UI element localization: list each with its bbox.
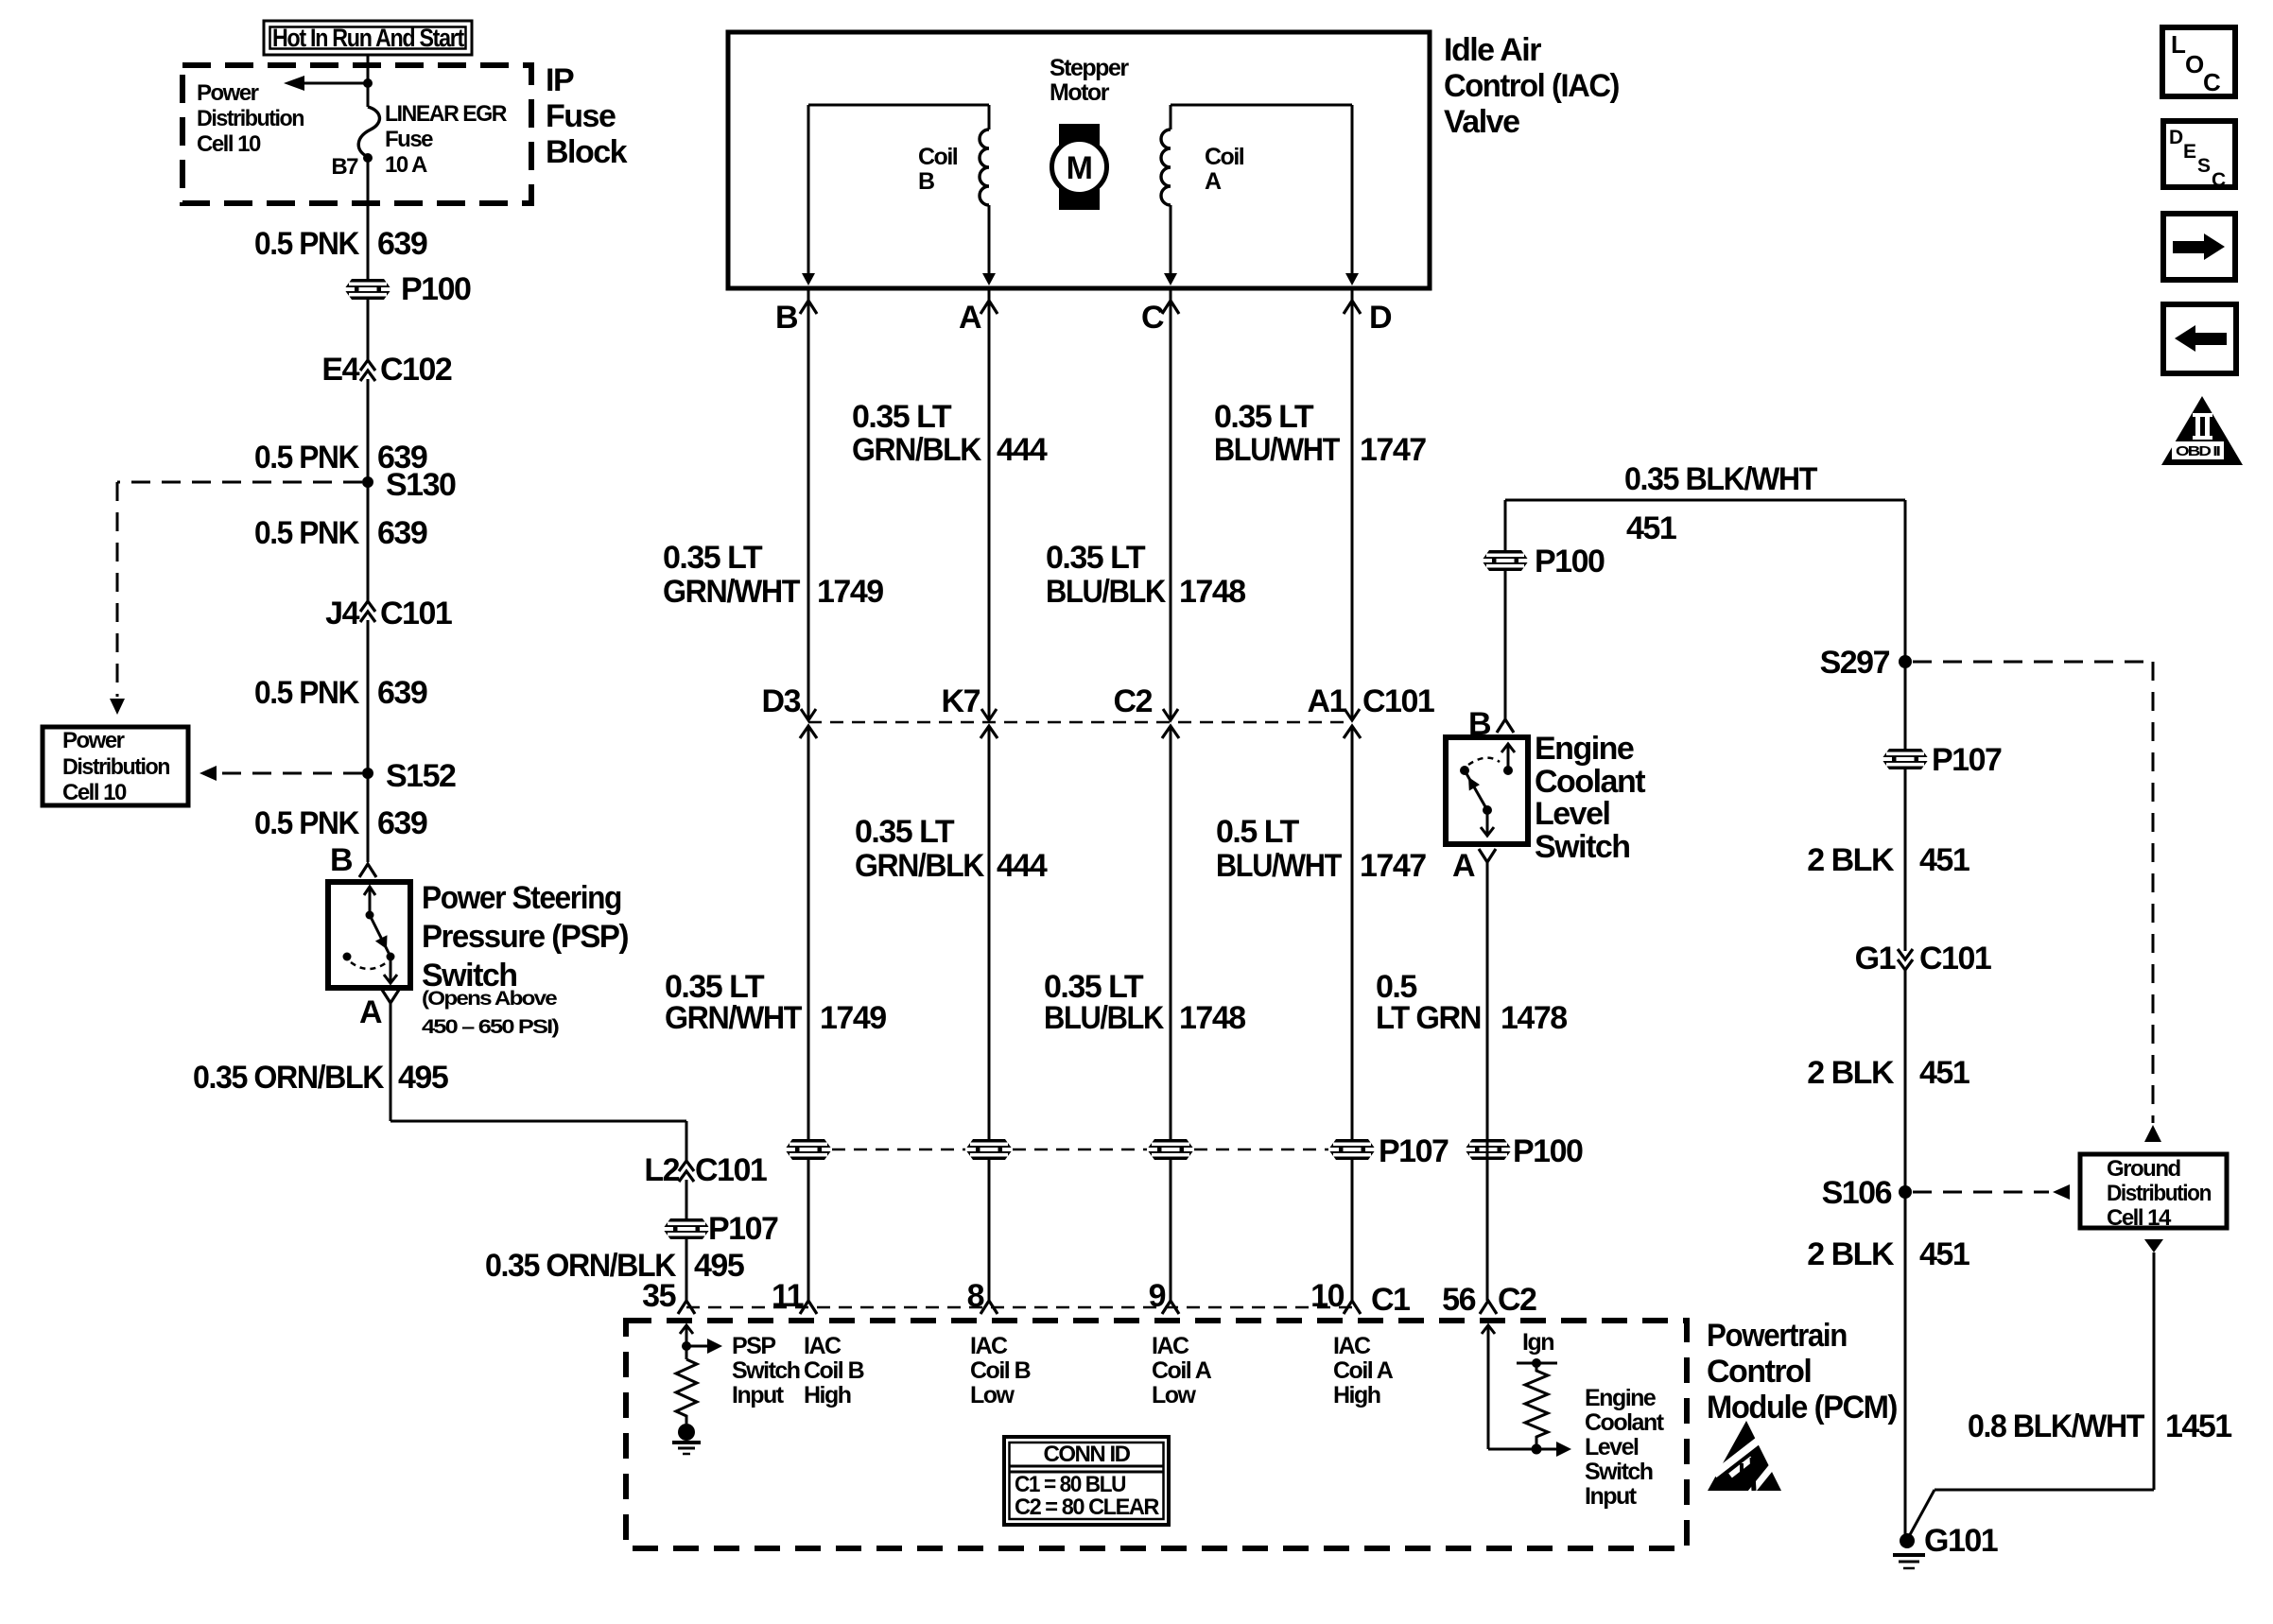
svg-text:E4: E4 (321, 352, 359, 388)
svg-text:Idle Air: Idle Air (1444, 32, 1541, 68)
svg-text:Ign: Ign (1522, 1329, 1553, 1356)
svg-text:GRN/WHT: GRN/WHT (663, 574, 801, 610)
svg-text:LT GRN: LT GRN (1376, 1000, 1481, 1036)
svg-text:35: 35 (642, 1278, 675, 1314)
svg-text:P100: P100 (401, 271, 471, 307)
svg-text:B: B (330, 842, 353, 878)
svg-text:BLU/BLK: BLU/BLK (1046, 574, 1167, 610)
svg-text:Power Steering: Power Steering (422, 880, 621, 916)
svg-text:BLU/WHT: BLU/WHT (1216, 848, 1343, 884)
svg-text:2 BLK: 2 BLK (1807, 1236, 1895, 1272)
svg-text:10 A: 10 A (385, 152, 427, 178)
svg-text:Power: Power (62, 728, 125, 753)
svg-text:0.5 PNK: 0.5 PNK (254, 675, 360, 711)
svg-text:C: C (1141, 300, 1164, 336)
svg-text:High: High (804, 1382, 851, 1408)
svg-text:Engine: Engine (1585, 1385, 1657, 1411)
svg-text:451: 451 (1919, 842, 1969, 878)
svg-text:B7: B7 (331, 154, 358, 180)
svg-text:1749: 1749 (820, 1000, 886, 1036)
svg-text:P100: P100 (1513, 1133, 1583, 1169)
svg-text:Pressure (PSP): Pressure (PSP) (422, 919, 628, 955)
svg-text:450 – 650 PSI): 450 – 650 PSI) (422, 1016, 559, 1038)
svg-text:Input: Input (732, 1382, 785, 1408)
svg-text:S297: S297 (1820, 645, 1890, 681)
svg-text:Control: Control (1707, 1354, 1811, 1390)
svg-text:C: C (2203, 68, 2221, 96)
svg-text:Coil A: Coil A (1333, 1357, 1394, 1384)
svg-text:Distribution: Distribution (62, 754, 170, 780)
svg-text:CONN ID: CONN ID (1044, 1442, 1131, 1467)
svg-text:E: E (2183, 141, 2196, 163)
svg-text:639: 639 (377, 515, 427, 551)
svg-text:D: D (1369, 300, 1392, 336)
svg-text:O: O (2185, 50, 2204, 78)
svg-text:1748: 1748 (1179, 1000, 1245, 1036)
svg-text:C101: C101 (1362, 683, 1434, 719)
svg-text:Cell 14: Cell 14 (2107, 1205, 2172, 1231)
svg-text:C2 = 80 CLEAR: C2 = 80 CLEAR (1015, 1494, 1159, 1520)
svg-text:A: A (1205, 168, 1222, 195)
svg-text:C1: C1 (1371, 1282, 1410, 1318)
svg-text:Switch: Switch (732, 1357, 800, 1384)
svg-text:S106: S106 (1822, 1175, 1892, 1211)
svg-text:Distribution: Distribution (197, 106, 304, 131)
svg-text:1748: 1748 (1179, 574, 1245, 610)
svg-text:Ground: Ground (2107, 1156, 2180, 1182)
svg-text:C101: C101 (380, 596, 452, 631)
svg-text:2 BLK: 2 BLK (1807, 1055, 1895, 1091)
svg-text:Switch: Switch (1585, 1459, 1653, 1485)
svg-text:D3: D3 (762, 683, 801, 719)
svg-text:Coil: Coil (918, 144, 958, 170)
svg-text:C2: C2 (1114, 683, 1153, 719)
svg-text:1747: 1747 (1360, 848, 1426, 884)
svg-text:1478: 1478 (1501, 1000, 1567, 1036)
svg-text:C102: C102 (380, 352, 452, 388)
svg-text:Valve: Valve (1444, 104, 1519, 140)
svg-text:G101: G101 (1924, 1523, 1998, 1559)
svg-text:451: 451 (1626, 510, 1676, 546)
svg-text:C2: C2 (1498, 1282, 1536, 1318)
svg-text:OBD II: OBD II (2176, 443, 2221, 459)
svg-text:0.35 LT: 0.35 LT (663, 540, 763, 576)
svg-text:0.35 LT: 0.35 LT (1214, 399, 1314, 435)
svg-text:Coolant: Coolant (1535, 764, 1645, 800)
svg-text:Control (IAC): Control (IAC) (1444, 68, 1619, 104)
svg-text:L: L (2171, 30, 2186, 59)
svg-text:Power: Power (197, 80, 259, 106)
svg-text:Switch: Switch (1535, 829, 1630, 865)
svg-text:C1 = 80 BLU: C1 = 80 BLU (1015, 1472, 1125, 1497)
svg-text:56: 56 (1442, 1282, 1475, 1318)
svg-text:Hot In Run And Start: Hot In Run And Start (272, 24, 464, 52)
svg-text:GRN/WHT: GRN/WHT (665, 1000, 803, 1036)
svg-text:Coil B: Coil B (804, 1357, 864, 1384)
svg-text:0.5 PNK: 0.5 PNK (254, 440, 360, 475)
svg-text:Stepper: Stepper (1050, 55, 1129, 81)
svg-text:1749: 1749 (817, 574, 883, 610)
svg-text:0.8 BLK/WHT: 0.8 BLK/WHT (1968, 1408, 2145, 1444)
svg-text:Block: Block (546, 134, 628, 170)
svg-text:P100: P100 (1535, 544, 1605, 579)
svg-text:Cell 10: Cell 10 (197, 131, 261, 157)
svg-text:Motor: Motor (1050, 79, 1110, 106)
svg-text:J4: J4 (325, 596, 359, 631)
svg-text:0.35 LT: 0.35 LT (1046, 540, 1146, 576)
svg-text:Fuse: Fuse (546, 98, 616, 134)
svg-text:Coil B: Coil B (970, 1357, 1031, 1384)
svg-text:A: A (359, 994, 382, 1030)
svg-text:444: 444 (997, 432, 1048, 468)
svg-text:495: 495 (694, 1248, 744, 1284)
svg-text:IAC: IAC (1152, 1333, 1189, 1359)
svg-text:(Opens Above: (Opens Above (422, 988, 557, 1010)
svg-text:639: 639 (377, 675, 427, 711)
svg-text:Engine: Engine (1535, 731, 1634, 767)
svg-text:High: High (1333, 1382, 1380, 1408)
svg-text:Input: Input (1585, 1483, 1638, 1510)
svg-text:K7: K7 (942, 683, 980, 719)
svg-text:639: 639 (377, 805, 427, 841)
svg-text:Coil: Coil (1205, 144, 1244, 170)
svg-text:P107: P107 (1932, 742, 2002, 778)
svg-text:11: 11 (772, 1278, 804, 1314)
svg-text:A: A (959, 300, 981, 336)
svg-text:2 BLK: 2 BLK (1807, 842, 1895, 878)
svg-text:S152: S152 (386, 758, 456, 794)
svg-text:S: S (2197, 155, 2211, 177)
svg-text:Level: Level (1585, 1434, 1639, 1460)
svg-text:639: 639 (377, 226, 427, 262)
svg-text:S130: S130 (386, 467, 456, 503)
svg-text:GRN/BLK: GRN/BLK (855, 848, 985, 884)
svg-text:10: 10 (1310, 1278, 1344, 1314)
svg-text:Module (PCM): Module (PCM) (1707, 1390, 1897, 1425)
svg-text:0.35 ORN/BLK: 0.35 ORN/BLK (193, 1060, 385, 1096)
svg-text:P107: P107 (1379, 1133, 1449, 1169)
svg-text:B: B (775, 300, 798, 336)
svg-text:A: A (1452, 848, 1475, 884)
svg-text:Coil A: Coil A (1152, 1357, 1212, 1384)
svg-text:C101: C101 (695, 1152, 767, 1188)
svg-text:D: D (2169, 127, 2183, 148)
svg-text:BLU/BLK: BLU/BLK (1044, 1000, 1165, 1036)
svg-text:0.5 PNK: 0.5 PNK (254, 805, 360, 841)
svg-text:C: C (2212, 169, 2226, 191)
svg-text:0.35 BLK/WHT: 0.35 BLK/WHT (1624, 461, 1818, 497)
svg-text:IP: IP (546, 62, 574, 98)
svg-text:IAC: IAC (804, 1333, 842, 1359)
svg-text:Low: Low (970, 1382, 1015, 1408)
svg-text:PSP: PSP (732, 1333, 775, 1359)
svg-text:444: 444 (997, 848, 1048, 884)
svg-text:0.5 PNK: 0.5 PNK (254, 226, 360, 262)
svg-text:LINEAR EGR: LINEAR EGR (385, 101, 507, 127)
svg-text:8: 8 (967, 1278, 984, 1314)
svg-text:0.35 LT: 0.35 LT (852, 399, 952, 435)
svg-text:GRN/BLK: GRN/BLK (852, 432, 982, 468)
svg-text:Powertrain: Powertrain (1707, 1318, 1847, 1354)
svg-text:495: 495 (398, 1060, 448, 1096)
svg-text:G1: G1 (1855, 941, 1896, 976)
svg-text:P107: P107 (708, 1211, 778, 1247)
svg-text:Coolant: Coolant (1585, 1409, 1665, 1436)
svg-text:Fuse: Fuse (385, 127, 433, 152)
svg-text:L2: L2 (644, 1152, 679, 1188)
svg-text:Level: Level (1535, 796, 1609, 832)
svg-text:1451: 1451 (2165, 1408, 2231, 1444)
svg-text:451: 451 (1919, 1055, 1969, 1091)
svg-text:Low: Low (1152, 1382, 1197, 1408)
svg-text:M: M (1067, 150, 1092, 186)
svg-text:Cell 10: Cell 10 (62, 780, 127, 805)
svg-text:1747: 1747 (1360, 432, 1426, 468)
svg-text:IAC: IAC (1333, 1333, 1371, 1359)
svg-text:0.35 LT: 0.35 LT (855, 814, 955, 850)
svg-text:0.5 LT: 0.5 LT (1216, 814, 1299, 850)
svg-text:Distribution: Distribution (2107, 1181, 2212, 1206)
svg-text:IAC: IAC (970, 1333, 1008, 1359)
svg-text:451: 451 (1919, 1236, 1969, 1272)
svg-text:0.5 PNK: 0.5 PNK (254, 515, 360, 551)
svg-text:A1: A1 (1308, 683, 1346, 719)
svg-text:C101: C101 (1919, 941, 1991, 976)
svg-text:9: 9 (1149, 1278, 1166, 1314)
svg-text:B: B (918, 168, 934, 195)
svg-text:BLU/WHT: BLU/WHT (1214, 432, 1341, 468)
